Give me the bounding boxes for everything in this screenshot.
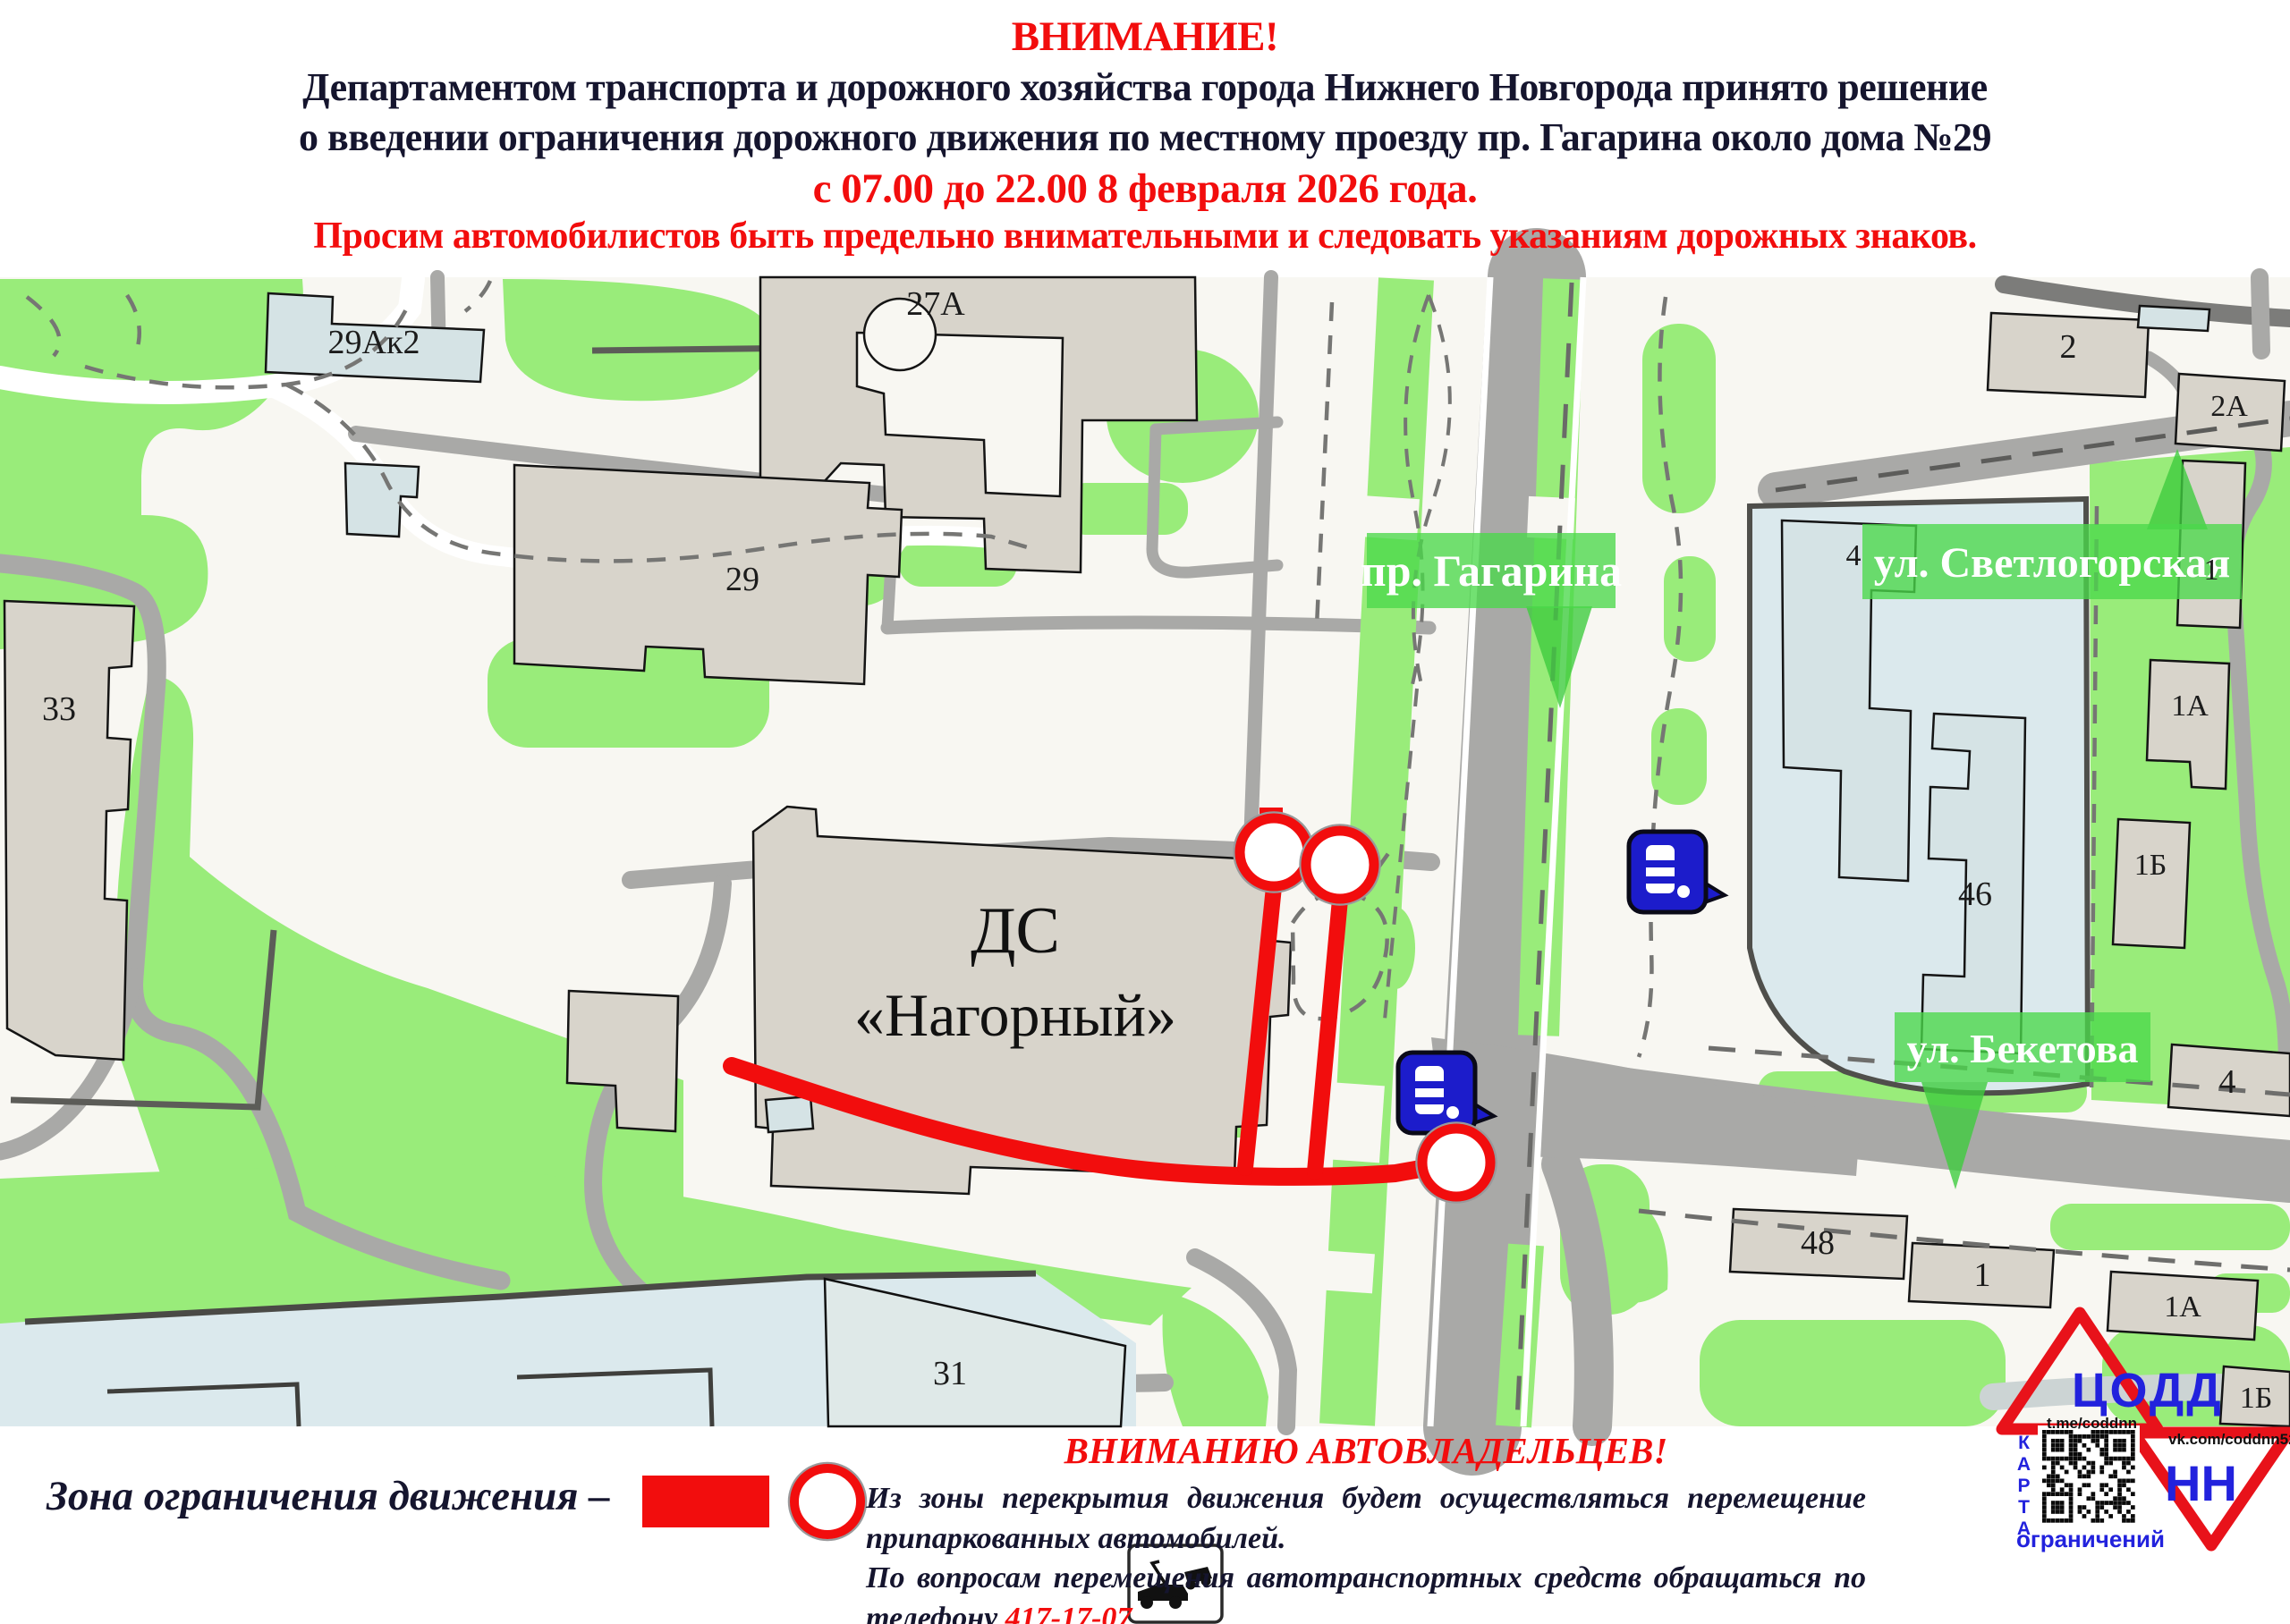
restriction-circle	[1417, 1123, 1497, 1203]
building-label: 1А	[2164, 1290, 2201, 1324]
restriction-circle	[1301, 825, 1380, 905]
logo-karta-text: КАРТА	[2013, 1433, 2034, 1540]
building-label: 31	[933, 1355, 967, 1392]
building-label: 1	[2204, 554, 2219, 587]
legend-label: Зона ограничения движения –	[47, 1472, 610, 1520]
logo-ogranicheniy-text: ограничений	[2016, 1526, 2165, 1553]
building-29	[514, 465, 902, 684]
logo-org-name: ЦОДД	[2072, 1363, 2224, 1418]
building-label: 46	[1958, 875, 1992, 913]
building-label: 1Б	[2134, 849, 2167, 882]
street-label-gagarina: пр. Гагарина	[1361, 546, 1622, 596]
street-label-beketova: ул. Бекетова	[1907, 1026, 2139, 1071]
legend-symbols	[642, 1463, 866, 1540]
header-line2: о введении ограничения дорожного движени…	[0, 114, 2290, 160]
building-label: 29	[725, 561, 759, 598]
venue-label-line1: ДС	[971, 894, 1060, 968]
building-label: 27А	[906, 285, 965, 323]
header-attention: ВНИМАНИЕ!	[0, 13, 2290, 61]
notice-paragraph1: Из зоны перекрытия движения будет осущес…	[866, 1479, 1866, 1559]
street-label-svetlogorskaya: ул. Светлогорская	[1874, 539, 2230, 587]
building-label: 33	[42, 690, 76, 728]
header-line3: с 07.00 до 22.00 8 февраля 2026 года.	[0, 165, 2290, 213]
header-line4: Просим автомобилистов быть предельно вни…	[0, 215, 2290, 258]
phone-number: 417-17-07	[1005, 1602, 1132, 1624]
legend-circle-sample	[794, 1468, 861, 1535]
logo-region: НН	[2165, 1454, 2237, 1512]
logo-telegram-link: t.me/coddnn	[2047, 1415, 2137, 1433]
logo-vk-link: vk.com/coddnn52	[2168, 1431, 2290, 1449]
building-label: 4	[1846, 539, 1862, 572]
notice-title: ВНИМАНИЮ АВТОВЛАДЕЛЬЦЕВ!	[866, 1429, 1866, 1472]
building-1b-top	[2113, 819, 2190, 948]
legend-line-sample	[642, 1476, 769, 1527]
poster: пр. Гагарина ул. Светлогорская ул. Бекет…	[0, 0, 2290, 1624]
building-label: 1Б	[2240, 1382, 2273, 1415]
building-label: 1А	[2171, 689, 2209, 723]
owners-notice: ВНИМАНИЮ АВТОВЛАДЕЛЬЦЕВ! Из зоны перекры…	[866, 1429, 1866, 1624]
notice-par1-text: Из зоны перекрытия движения будет осущес…	[866, 1482, 1866, 1555]
building-label: 48	[1801, 1224, 1835, 1262]
building-label: 2А	[2210, 390, 2248, 423]
venue-label-line2: «Нагорный»	[854, 981, 1176, 1049]
building-label: 2	[2060, 328, 2077, 366]
building-label: 29Ак2	[328, 324, 420, 361]
header-line1: Департаментом транспорта и дорожного хоз…	[0, 64, 2290, 110]
building-label: 4	[2219, 1063, 2236, 1101]
notice-paragraph2: По вопросам перемещения автотранспортных…	[866, 1559, 1866, 1624]
building-label: 1	[1974, 1256, 1991, 1294]
